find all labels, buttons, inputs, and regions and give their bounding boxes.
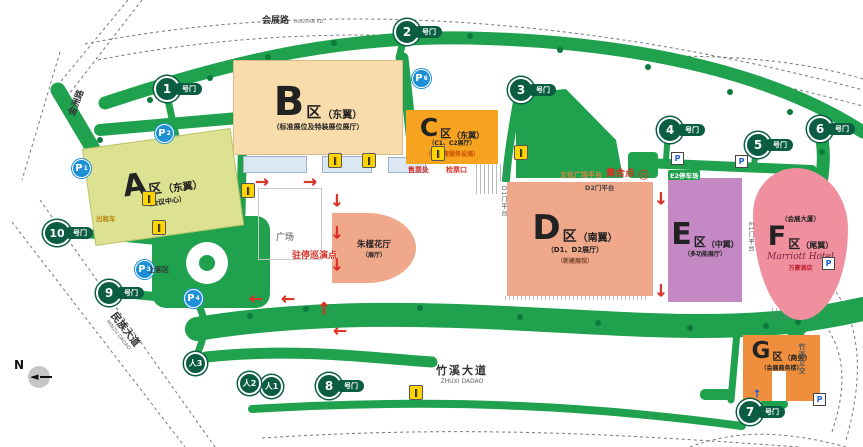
gate-9-label: 号门: [115, 287, 144, 299]
zone-a-turnstile-icon: ‖: [142, 191, 156, 206]
route-arrow-left-3: ←: [333, 324, 347, 341]
zone-b: B 区 （东翼） （标准展位及特装展位展厅）: [233, 60, 403, 155]
route-arrow-down-5: ↓: [654, 284, 668, 301]
compass-arrow-tail: [40, 376, 52, 378]
p-sub: 4: [196, 295, 200, 302]
assembly-point: 集合点 ◎: [606, 165, 649, 182]
gate-10: 10 号门: [43, 220, 93, 246]
south-outer-arc: [252, 404, 742, 426]
assembly-target-icon: ◎: [638, 167, 649, 182]
zone-e: E 区 （中翼） （多功能展厅）: [668, 178, 742, 302]
zone-c-wing: （东翼）: [452, 132, 484, 139]
route-arrow-left-2: ←: [249, 292, 263, 309]
gate-5: 5 号门: [745, 132, 793, 158]
ped-gate-3: 人3: [184, 352, 207, 375]
gate-8: 8 号门: [316, 373, 364, 399]
parade-stop-label: 驻停巡演点: [292, 248, 337, 261]
road-northwest-dash-2: [66, 0, 142, 98]
zone-d-letter: D: [532, 213, 560, 244]
turnstile-glyph: ‖: [519, 148, 523, 157]
gate-5-label: 号门: [764, 139, 793, 151]
p-sub: 2: [167, 130, 171, 137]
e2-parking-label: E2停车场: [668, 170, 700, 180]
d1-platform-label: D1门平台: [499, 186, 508, 217]
road-zhuxi-ramp-label: 竹溪立交: [797, 343, 807, 375]
zone-c-letter: C: [420, 117, 438, 140]
turnstile-5: ‖: [152, 220, 166, 235]
ped-num: 1: [273, 382, 279, 391]
ped-gate-2: 人2: [238, 372, 261, 395]
turnstile-6: ‖: [409, 385, 423, 400]
parking-sign-1: P: [671, 152, 684, 165]
zone-c-unit: 区: [440, 129, 451, 139]
compass-n-label: N: [14, 358, 24, 372]
gate-8-label: 号门: [335, 380, 364, 392]
p-glyph: P: [817, 395, 823, 404]
ticket-check-label: 检票口: [446, 165, 467, 175]
p-glyph: P: [415, 73, 422, 84]
gate-4: 4 号门: [657, 117, 705, 143]
zone-g-left-strip: [731, 332, 737, 400]
p-glyph: P: [138, 264, 145, 275]
turnstile-glyph: ‖: [436, 149, 440, 158]
zone-b-unit: 区: [306, 106, 321, 120]
road-zhuxi-zh: 竹溪大道: [436, 362, 488, 378]
road-northwest-dash-1: [52, 0, 128, 92]
p-glyph: P: [675, 154, 681, 163]
road-huizhan-en: HUIZHAN RD: [294, 20, 323, 25]
p-glyph: P: [75, 163, 82, 174]
parking-p4: P4: [184, 289, 203, 308]
turnstile-glyph: ‖: [157, 223, 161, 232]
route-arrow-down-1: ↓: [330, 194, 344, 211]
route-arrow-right-2: →: [303, 175, 317, 192]
ped-num: 2: [251, 379, 257, 388]
parking-sign-4: P: [813, 393, 826, 406]
gate-3: 3 号门: [508, 77, 556, 103]
zone-f-top-label: （会展大厦）: [781, 215, 820, 223]
roundabout-island: [199, 255, 215, 271]
zone-f-letter: F: [768, 225, 786, 249]
ped-gate-2-number: 人2: [238, 372, 261, 395]
route-arrow-right-1: →: [255, 175, 269, 192]
zone-b-sub: （标准展位及特装展位展厅）: [273, 123, 364, 132]
zone-d-west-platform: D1门平台: [497, 182, 507, 296]
p-sub: 1: [84, 165, 88, 172]
gate-2: 2 号门: [394, 19, 442, 45]
zone-a-title: A 区 （东翼）: [121, 162, 203, 200]
gate-1: 1 号门: [154, 76, 202, 102]
compass-arrow-icon: ◄: [30, 370, 38, 383]
road-south-outer-dash: [262, 432, 800, 447]
turnstile-1: ‖: [241, 183, 255, 198]
ped-prefix: 人: [189, 358, 197, 369]
zone-b-wing: （东翼）: [322, 111, 362, 120]
zone-g-south-patch-1: [700, 389, 732, 400]
gate-2-label: 号门: [413, 26, 442, 38]
gate-9: 9 号门: [96, 280, 144, 306]
zone-e-sub: （多功能展厅）: [684, 251, 726, 259]
zone-f-unit: 区: [788, 239, 800, 250]
gate-7-label: 号门: [756, 406, 785, 418]
route-arrow-blue-up: ↑: [752, 389, 761, 400]
p-glyph: P: [826, 259, 832, 268]
d2-platform-label: D2门平台: [585, 182, 614, 192]
p-glyph: P: [739, 157, 745, 166]
p-glyph: P: [187, 293, 194, 304]
zhujin-hall-label: 朱槿花厅: [357, 238, 391, 250]
zone-d: D 区 （南翼） （D1、D2展厅） （新建展馆）: [497, 182, 653, 296]
south-second-band: [206, 353, 432, 362]
road-huizhan-zh: 会展路: [262, 16, 289, 26]
zone-b-title: B 区 （东翼）: [274, 84, 363, 120]
zone-g-letter: G: [752, 341, 771, 362]
plaza-label: 广场: [276, 230, 294, 243]
parking-p2: P2: [155, 124, 174, 143]
assembly-label: 集合点: [606, 168, 635, 179]
zhujin-hall-sub: （展厅）: [357, 250, 391, 259]
route-arrow-left-1: ←: [281, 292, 295, 309]
turnstile-3: ‖: [362, 153, 376, 168]
zone-d-unit: 区: [563, 231, 577, 244]
road-zhuxi-label: 竹溪大道 ZHUXI DADAO: [436, 362, 488, 385]
turnstile-glyph: ‖: [414, 388, 418, 397]
zone-d-wing: （南翼）: [578, 234, 618, 243]
ticket-office-label: 售票处: [408, 165, 429, 175]
zone-f-title: F 区 （尾翼）: [768, 225, 833, 249]
zone-a-wing: （东翼）: [162, 180, 203, 194]
zone-f-wing: （尾翼）: [801, 242, 833, 249]
zone-f-sub: 万豪酒店: [788, 265, 812, 273]
turnstile-2: ‖: [328, 153, 342, 168]
zone-g-unit: 区: [772, 353, 782, 362]
zone-e-letter: E: [671, 221, 692, 248]
zone-g-notch: [772, 371, 786, 401]
zone-c-title: C 区 （东翼）: [420, 117, 484, 140]
zone-d-title: D 区 （南翼）: [532, 213, 617, 244]
culture-platform-label: 文化广场平台: [560, 170, 602, 180]
turnstile-4: ‖: [514, 145, 528, 160]
ped-prefix: 人: [243, 378, 251, 389]
gate-3-label: 号门: [527, 84, 556, 96]
p-glyph: P: [158, 128, 165, 139]
gate-7: 7 号门: [737, 399, 785, 425]
site-map: A 区 （东翼） （会议中心） ‖ B 区 （东翼） （标准展位及特装展位展厅）…: [0, 0, 863, 447]
ped-prefix: 人: [265, 381, 273, 392]
gate-1-label: 号门: [173, 83, 202, 95]
zone-e-unit: 区: [694, 237, 706, 248]
gate-6: 6 号门: [807, 116, 855, 142]
gate-4-label: 号门: [676, 124, 705, 136]
turnstile-glyph: ‖: [246, 186, 250, 195]
ped-gate-3-number: 人3: [184, 352, 207, 375]
zone-c-turnstile-icon: ‖: [431, 146, 445, 161]
zone-d-sub2: （新建展馆）: [557, 256, 593, 265]
zone-b-letter: B: [274, 84, 305, 120]
taxi-label: 出租车: [96, 213, 116, 223]
parking-p1: P1: [72, 159, 91, 178]
boarding-area-label: 上客区: [148, 265, 169, 275]
concourse-1: [243, 156, 307, 173]
gate-6-label: 号门: [826, 123, 855, 135]
road-zhuxi-en: ZHUXI DADAO: [436, 378, 488, 385]
zhujin-hall-label-group: 朱槿花厅 （展厅）: [357, 238, 391, 259]
road-jinzhou-dash: [22, 52, 60, 180]
gate-10-label: 号门: [64, 227, 93, 239]
ped-num: 3: [197, 359, 203, 368]
parking-sign-3: P: [822, 257, 835, 270]
road-huizhan-label: 会展路 HUIZHAN RD: [262, 8, 323, 27]
route-arrow-down-2: ↓: [330, 226, 344, 243]
e1-platform-label: E1门平台: [746, 222, 755, 253]
turnstile-glyph: ‖: [333, 156, 337, 165]
zone-c: C 区 （东翼） （C1、C2展厅） （含配套服务设施）: [406, 110, 498, 164]
p-sub: 6: [424, 75, 428, 82]
parking-p6: P6: [412, 69, 431, 88]
turnstile-glyph: ‖: [367, 156, 371, 165]
ped-gate-1-number: 人1: [260, 375, 283, 398]
zone-e-title: E 区 （中翼）: [671, 221, 739, 248]
turnstile-glyph: ‖: [147, 194, 151, 203]
zone-e-wing: （中翼）: [707, 241, 739, 248]
route-arrow-down-4: ↓: [654, 192, 668, 209]
ped-gate-1: 人1: [260, 375, 283, 398]
zone-d-sub: （D1、D2展厅）: [547, 246, 603, 255]
route-arrow-up-1: ↑: [317, 302, 331, 319]
